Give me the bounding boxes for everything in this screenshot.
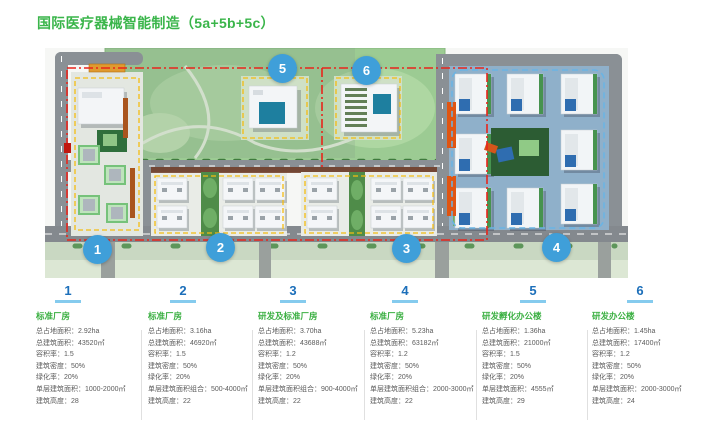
block-line: 总建筑面积：43520㎡ xyxy=(36,338,142,350)
block-line: 建筑密度：50% xyxy=(592,361,698,373)
block-line: 绿化率：20% xyxy=(36,372,142,384)
block-line: 总建筑面积：46920㎡ xyxy=(148,338,254,350)
block-info-2: 2 标准厂房 总占地面积：3.16ha总建筑面积：46920㎡容积率：1.5建筑… xyxy=(148,284,254,407)
block-line: 绿化率：20% xyxy=(370,372,476,384)
block-line: 建筑高度：29 xyxy=(482,396,588,408)
map-marker-2: 2 xyxy=(206,233,235,262)
map-marker-4: 4 xyxy=(542,233,571,262)
map-marker-3: 3 xyxy=(392,234,421,263)
block-number: 6 xyxy=(627,284,653,303)
block-line: 绿化率：20% xyxy=(482,372,588,384)
block-line: 容积率：1.5 xyxy=(36,349,142,361)
block-line: 总建筑面积：63182㎡ xyxy=(370,338,476,350)
site-plan-svg xyxy=(45,48,628,278)
block-3-plot xyxy=(301,172,437,236)
boundary-chip xyxy=(64,143,71,153)
block-lines: 总占地面积：1.36ha总建筑面积：21000㎡容积率：1.5建筑密度：50%绿… xyxy=(482,326,588,407)
block-line: 总占地面积：2.92ha xyxy=(36,326,142,338)
block-line: 建筑高度：28 xyxy=(36,396,142,408)
block-line: 单层建筑面积组合：2000-3000㎡ xyxy=(370,384,476,396)
block-lines: 总占地面积：2.92ha总建筑面积：43520㎡容积率：1.5建筑密度：50%绿… xyxy=(36,326,142,407)
block-title: 标准厂房 xyxy=(370,310,476,322)
block-line: 建筑密度：50% xyxy=(148,361,254,373)
map-marker-6: 6 xyxy=(352,56,381,85)
block-line: 容积率：1.2 xyxy=(370,349,476,361)
block-1-plot xyxy=(71,64,143,236)
block-line: 建筑高度：22 xyxy=(370,396,476,408)
site-plan-image: 1 2 3 4 5 6 xyxy=(45,48,628,278)
block-info-3: 3 研发及标准厂房 总占地面积：3.70ha总建筑面积：43688㎡容积率：1.… xyxy=(258,284,364,407)
block-line: 建筑高度：22 xyxy=(258,396,364,408)
block-line: 绿化率：20% xyxy=(592,372,698,384)
block-line: 总占地面积：3.16ha xyxy=(148,326,254,338)
block-line: 容积率：1.5 xyxy=(482,349,588,361)
column-divider xyxy=(141,330,142,420)
plot-5 xyxy=(241,76,309,140)
block-line: 绿化率：20% xyxy=(258,372,364,384)
block-info-4: 4 标准厂房 总占地面积：5.23ha总建筑面积：63182㎡容积率：1.2建筑… xyxy=(370,284,476,407)
block-number: 3 xyxy=(280,284,306,303)
block-number: 5 xyxy=(520,284,546,303)
block-line: 容积率：1.2 xyxy=(258,349,364,361)
block-line: 单层建筑面积：1000-2000㎡ xyxy=(36,384,142,396)
page-title: 国际医疗器械智能制造（5a+5b+5c） xyxy=(37,13,275,33)
block-line: 总占地面积：1.45ha xyxy=(592,326,698,338)
column-divider xyxy=(252,330,253,420)
block-4-plot xyxy=(447,66,609,231)
block-line: 建筑密度：50% xyxy=(482,361,588,373)
column-divider xyxy=(587,330,588,420)
block-title: 研发孵化办公楼 xyxy=(482,310,588,322)
slide: 国际医疗器械智能制造（5a+5b+5c） xyxy=(0,0,721,433)
block-line: 总建筑面积：21000㎡ xyxy=(482,338,588,350)
block-line: 建筑密度：50% xyxy=(370,361,476,373)
block-line: 建筑密度：50% xyxy=(258,361,364,373)
block-number: 4 xyxy=(392,284,418,303)
map-marker-1: 1 xyxy=(83,235,112,264)
block-title: 标准厂房 xyxy=(36,310,142,322)
block-line: 总占地面积：1.36ha xyxy=(482,326,588,338)
block-line: 建筑高度：24 xyxy=(592,396,698,408)
block-line: 单层建筑面积组合：900-4000㎡ xyxy=(258,384,364,396)
block-line: 总占地面积：3.70ha xyxy=(258,326,364,338)
block-lines: 总占地面积：3.70ha总建筑面积：43688㎡容积率：1.2建筑密度：50%绿… xyxy=(258,326,364,407)
block-line: 建筑密度：50% xyxy=(36,361,142,373)
block-title: 研发办公楼 xyxy=(592,310,698,322)
block-line: 单层建筑面积组合：500-4000㎡ xyxy=(148,384,254,396)
plot-6 xyxy=(334,76,402,140)
block-lines: 总占地面积：5.23ha总建筑面积：63182㎡容积率：1.2建筑密度：50%绿… xyxy=(370,326,476,407)
block-line: 容积率：1.5 xyxy=(148,349,254,361)
block-number: 2 xyxy=(170,284,196,303)
block-line: 总占地面积：5.23ha xyxy=(370,326,476,338)
block-lines: 总占地面积：3.16ha总建筑面积：46920㎡容积率：1.5建筑密度：50%绿… xyxy=(148,326,254,407)
block-line: 容积率：1.2 xyxy=(592,349,698,361)
block-line: 绿化率：20% xyxy=(148,372,254,384)
block-number: 1 xyxy=(55,284,81,303)
block-info-5: 5 研发孵化办公楼 总占地面积：1.36ha总建筑面积：21000㎡容积率：1.… xyxy=(482,284,588,407)
column-divider xyxy=(476,330,477,420)
block-line: 总建筑面积：17400㎡ xyxy=(592,338,698,350)
block-title: 标准厂房 xyxy=(148,310,254,322)
block-lines: 总占地面积：1.45ha总建筑面积：17400㎡容积率：1.2建筑密度：50%绿… xyxy=(592,326,698,407)
block-line: 单层建筑面积：4555㎡ xyxy=(482,384,588,396)
block-info-6: 6 研发办公楼 总占地面积：1.45ha总建筑面积：17400㎡容积率：1.2建… xyxy=(592,284,698,407)
block-line: 总建筑面积：43688㎡ xyxy=(258,338,364,350)
map-marker-5: 5 xyxy=(268,54,297,83)
block-info-1: 1 标准厂房 总占地面积：2.92ha总建筑面积：43520㎡容积率：1.5建筑… xyxy=(36,284,142,407)
block-title: 研发及标准厂房 xyxy=(258,310,364,322)
block-line: 建筑高度：22 xyxy=(148,396,254,408)
column-divider xyxy=(364,330,365,420)
block-line: 单层建筑面积：2000-3000㎡ xyxy=(592,384,698,396)
